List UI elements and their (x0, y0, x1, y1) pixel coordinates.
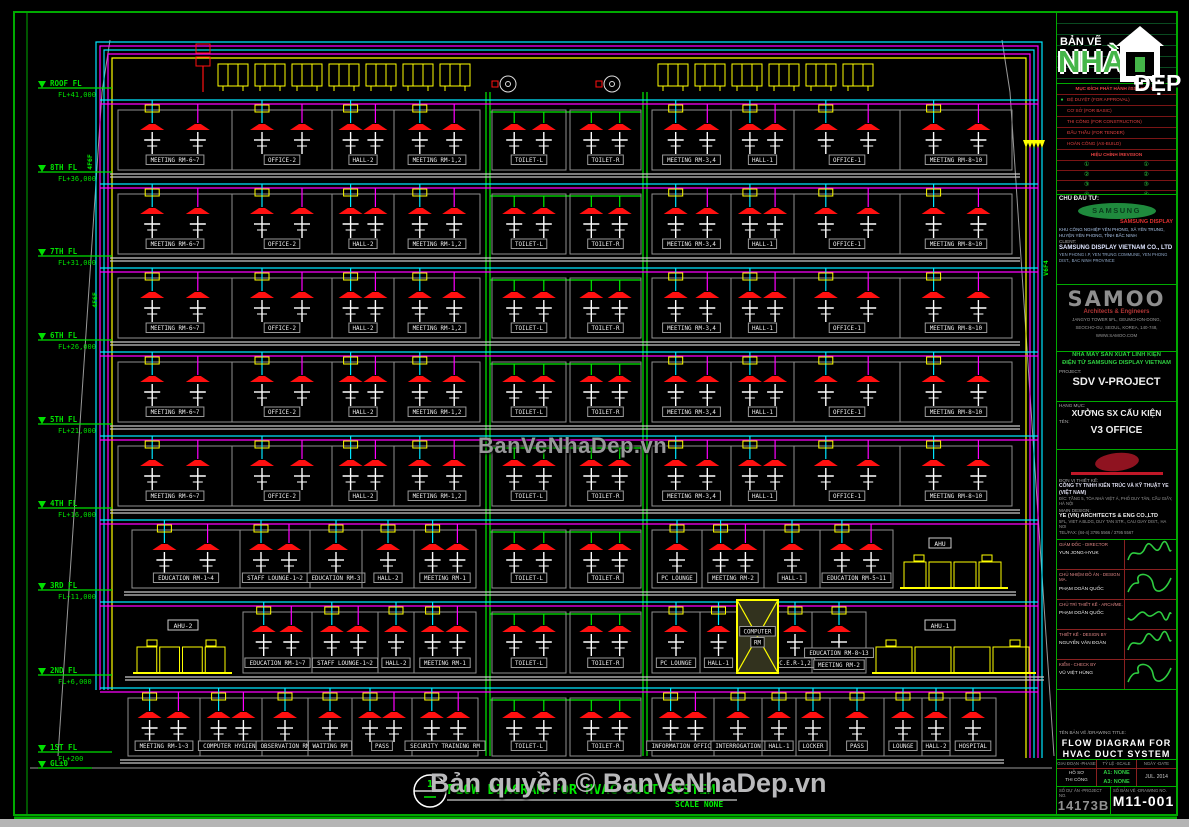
svg-text:HALL-1: HALL-1 (752, 494, 773, 500)
revision-row: ③③ (1057, 181, 1176, 191)
svg-text:OFFICE-1: OFFICE-1 (833, 410, 861, 416)
signature-role-cell: CHỦ NHIỆM ĐỒ ÁN - DESIGN MA.PHẠM DOÃN QU… (1057, 570, 1125, 599)
svg-text:LOCKER: LOCKER (803, 744, 824, 750)
revision-mark: ③ (1117, 181, 1177, 190)
revision-mark: ② (1117, 171, 1177, 180)
svg-text:TOILET-L: TOILET-L (515, 576, 543, 582)
svg-text:TOILET-R: TOILET-R (592, 158, 620, 164)
signature-mark (1125, 570, 1176, 599)
revision-rows: ①①②②③③④④ (1057, 161, 1176, 194)
svg-text:STAFF LOUNGE-1~2: STAFF LOUNGE-1~2 (247, 576, 303, 582)
drawing-title-block: TÊN BẢN VẼ /DRAWING TITLE: FLOW DIAGRAM … (1057, 689, 1176, 759)
project-block: NHÀ MÁY SẢN XUẤT LINH KIỆN ĐIỆN TỬ SAMSU… (1057, 351, 1176, 401)
signature-mark (1125, 660, 1176, 689)
svg-text:MEETING RM-8~10: MEETING RM-8~10 (930, 242, 983, 248)
project-label: PROJECT: (1057, 368, 1176, 374)
signature-row: GIÁM ĐỐC - DIRECTORYUN JONG-HYUK (1057, 540, 1176, 570)
svg-text:FL+16,000: FL+16,000 (58, 511, 96, 519)
svg-text:HALL-2: HALL-2 (378, 576, 399, 582)
designer-logo-bar (1071, 472, 1163, 475)
svg-text:HALL-2: HALL-2 (353, 242, 374, 248)
svg-text:INFORMATION OFFICE: INFORMATION OFFICE (652, 744, 715, 750)
svg-text:OFFICE-1: OFFICE-1 (833, 326, 861, 332)
revision-header: HIỆU CHỈNH /REVISION (1057, 150, 1176, 161)
drawing-title-line2: HVAC DUCT SYSTEM (1057, 749, 1176, 759)
svg-text:OFFICE-2: OFFICE-2 (268, 494, 296, 500)
item-block: HẠNG MỤC: XƯỞNG SX CẤU KIỆN TÊN: V3 OFFI… (1057, 401, 1176, 449)
svg-text:TOILET-L: TOILET-L (515, 494, 543, 500)
svg-text:FL+26,000: FL+26,000 (58, 343, 96, 351)
part-label: TÊN: (1057, 418, 1176, 424)
duct-riser-bundle: 4F6F4F6FV6F4 (86, 42, 1050, 758)
client-desc-vn: KHU CÔNG NGHIỆP YÊN PHONG, XÃ YÊN TRUNG,… (1057, 225, 1176, 238)
issued-active-dot (1057, 139, 1067, 149)
svg-text:SCALE NONE: SCALE NONE (675, 800, 723, 809)
svg-text:MEETING RM-8~10: MEETING RM-8~10 (930, 326, 983, 332)
signature-role-cell: CHỦ TRÌ THIẾT KẾ - ARCH/ME.PHẠM DOÃN QUỐ… (1057, 600, 1125, 629)
svg-text:5TH FL: 5TH FL (50, 415, 78, 424)
scale-col: TỶ LỆ -SCALE A1: NONE A3: NONE (1096, 760, 1136, 786)
samoo-address-1: JANGYO TOWER 5FL, GEUMCHON-DONG, (1057, 317, 1176, 323)
svg-text:MEETING RM-6~7: MEETING RM-6~7 (151, 326, 200, 332)
signature-row: CHỦ NHIỆM ĐỒ ÁN - DESIGN MA.PHẠM DOÃN QU… (1057, 570, 1176, 600)
svg-text:HOSPITAL: HOSPITAL (959, 744, 987, 750)
scale-label: TỶ LỆ -SCALE (1097, 760, 1136, 769)
issued-active-dot (1057, 117, 1067, 127)
svg-text:FL+11,000: FL+11,000 (58, 593, 96, 601)
floor-levels: ROOF FLFL+41,0008TH FLFL+36,0007TH FLFL+… (38, 79, 112, 768)
svg-text:OFFICE-1: OFFICE-1 (833, 158, 861, 164)
svg-text:TOILET-L: TOILET-L (515, 242, 543, 248)
client-label: CHỦ ĐẦU TƯ: (1057, 195, 1176, 202)
svg-text:TOILET-L: TOILET-L (515, 410, 543, 416)
svg-text:C.E.R-1,2: C.E.R-1,2 (779, 661, 810, 667)
designer-address-vn: Đ/C: TẦNG 5, TÒA NHÀ VIỆT Á, PHỐ DUY TÂN… (1057, 496, 1176, 507)
svg-text:COMPUTER: COMPUTER (744, 630, 772, 636)
svg-text:TOILET-R: TOILET-R (592, 576, 620, 582)
project-name-vn-2: ĐIỆN TỬ SAMSUNG DISPLAY VIETNAM (1057, 360, 1176, 368)
svg-text:HALL-1: HALL-1 (708, 661, 729, 667)
watermark-bottom: Bản quyền © BanVeNhaDep.vn (430, 768, 826, 799)
svg-text:HALL-1: HALL-1 (752, 410, 773, 416)
svg-text:HALL-2: HALL-2 (353, 158, 374, 164)
issued-row: HOÀN CÔNG (AS-BUILD) (1057, 139, 1176, 150)
revision-mark: ① (1057, 161, 1117, 170)
client-address: YEN PHONG I.P, YEN TRUNG COMMUNE, YEN PH… (1057, 251, 1176, 263)
svg-text:MEETING RM-6~7: MEETING RM-6~7 (151, 410, 200, 416)
date-value: JUL. 2014 (1137, 769, 1176, 786)
issued-row-label: HOÀN CÔNG (AS-BUILD) (1067, 139, 1121, 149)
svg-text:OFFICE-1: OFFICE-1 (833, 242, 861, 248)
svg-text:MEETING RM-1,2: MEETING RM-1,2 (413, 242, 462, 248)
project-name-vn-1: NHÀ MÁY SẢN XUẤT LINH KIỆN (1057, 352, 1176, 360)
svg-text:FL+21,000: FL+21,000 (58, 427, 96, 435)
item-name: XƯỞNG SX CẤU KIỆN (1057, 408, 1176, 418)
svg-text:2ND FL: 2ND FL (50, 666, 78, 675)
project-name: SDV V-PROJECT (1057, 376, 1176, 388)
svg-text:MEETING RM-8~10: MEETING RM-8~10 (930, 158, 983, 164)
svg-text:MEETING RM-1,2: MEETING RM-1,2 (413, 494, 462, 500)
svg-text:ROOF FL: ROOF FL (50, 79, 82, 88)
svg-text:TOILET-R: TOILET-R (592, 326, 620, 332)
project-no-cell: SỐ DỰ ÁN -PROJECT NO. 14173B (1057, 787, 1111, 816)
svg-text:MEETING RM-1,2: MEETING RM-1,2 (413, 158, 462, 164)
logo-text-dep: ĐẸP (1134, 72, 1181, 95)
hvac-flow-diagram: 4F6F4F6FV6F4ROOF FLFL+41,0008TH FLFL+36,… (0, 0, 1189, 827)
svg-text:MEETING RM-3,4: MEETING RM-3,4 (667, 410, 716, 416)
svg-text:PASS: PASS (375, 744, 389, 750)
svg-text:AHU: AHU (934, 541, 945, 548)
title-block: MỤC ĐÍCH PHÁT HÀNH /ISSUED FOR ●ĐỆ DUYỆT… (1056, 12, 1177, 815)
svg-text:HALL-2: HALL-2 (926, 744, 947, 750)
svg-text:OFFICE-2: OFFICE-2 (268, 158, 296, 164)
signature-role: CHỦ TRÌ THIẾT KẾ - ARCH/ME. (1059, 602, 1124, 607)
svg-text:STAFF LOUNGE-1~2: STAFF LOUNGE-1~2 (317, 661, 373, 667)
signature-row: KIỂM - CHECK BYVŨ VIỆT HÙNG (1057, 660, 1176, 689)
signature-mark (1125, 600, 1176, 629)
svg-text:WAITING RM: WAITING RM (313, 744, 348, 750)
svg-text:TOILET-R: TOILET-R (592, 744, 620, 750)
signature-role-cell: KIỂM - CHECK BYVŨ VIỆT HÙNG (1057, 660, 1125, 689)
issued-row: ĐẤU THẦU (FOR TENDER) (1057, 128, 1176, 139)
svg-text:COMPUTER HYGIENE: COMPUTER HYGIENE (203, 744, 259, 750)
signature-row: CHỦ TRÌ THIẾT KẾ - ARCH/ME.PHẠM DOÃN QUỐ… (1057, 600, 1176, 630)
signature-name: VŨ VIỆT HÙNG (1059, 671, 1124, 676)
svg-text:7TH FL: 7TH FL (50, 247, 78, 256)
svg-text:FL+31,000: FL+31,000 (58, 259, 96, 267)
signature-role: KIỂM - CHECK BY (1059, 662, 1124, 667)
svg-text:4F6F: 4F6F (86, 154, 94, 170)
client-name: SAMSUNG DISPLAY VIETNAM CO., LTD (1057, 244, 1176, 251)
signature-role: CHỦ NHIỆM ĐỒ ÁN - DESIGN MA. (1059, 572, 1124, 583)
watermark-center: BanVeNhaDep.vn (478, 433, 667, 459)
svg-text:PC LOUNGE: PC LOUNGE (660, 661, 692, 667)
svg-text:MEETING RM-1~3: MEETING RM-1~3 (140, 744, 189, 750)
revision-mark: ② (1057, 171, 1117, 180)
phase-value-2: THI CÔNG (1057, 777, 1096, 783)
svg-text:OFFICE-1: OFFICE-1 (833, 494, 861, 500)
floor-8F: MEETING RM-6~7OFFICE-2HALL-2MEETING RM-1… (100, 100, 1038, 177)
client-block: CHỦ ĐẦU TƯ: SAMSUNG SAMSUNG DISPLAY KHU … (1057, 194, 1176, 284)
project-no: 14173B (1057, 798, 1110, 813)
svg-text:MEETING RM-1: MEETING RM-1 (424, 576, 466, 582)
svg-text:EDUCATION RM-3: EDUCATION RM-3 (312, 576, 361, 582)
revision-row: ①① (1057, 161, 1176, 171)
svg-text:OFFICE-2: OFFICE-2 (268, 410, 296, 416)
designer-address-en: 5FL, VIET A BLDG, DUY TAN STR., CAU GIAY… (1057, 519, 1176, 530)
drawing-no: M11-001 (1111, 793, 1176, 809)
scale-value-a1: A1: NONE (1097, 770, 1136, 778)
svg-text:EDUCATION RM-8~13: EDUCATION RM-8~13 (809, 651, 869, 657)
designer-company-vn: CÔNG TY TNHH KIẾN TRÚC VÀ KỸ THUẬT YE (V… (1057, 483, 1176, 496)
floor-6F: MEETING RM-6~7OFFICE-2HALL-2MEETING RM-1… (100, 268, 1038, 345)
svg-text:1ST FL: 1ST FL (50, 743, 78, 752)
svg-text:TOILET-R: TOILET-R (592, 494, 620, 500)
svg-text:LOUNGE: LOUNGE (893, 744, 914, 750)
floor-5F: MEETING RM-6~7OFFICE-2HALL-2MEETING RM-1… (100, 352, 1038, 429)
svg-text:TOILET-L: TOILET-L (515, 661, 543, 667)
svg-text:EDUCATION RM-1~7: EDUCATION RM-1~7 (250, 661, 306, 667)
svg-text:PASS: PASS (850, 744, 864, 750)
cad-sheet: 4F6F4F6FV6F4ROOF FLFL+41,0008TH FLFL+36,… (0, 0, 1189, 827)
svg-text:TOILET-L: TOILET-L (515, 326, 543, 332)
svg-text:MEETING RM-1,2: MEETING RM-1,2 (413, 410, 462, 416)
samoo-website: WWW.SAMOO.COM (1057, 333, 1176, 339)
svg-text:TOILET-R: TOILET-R (592, 410, 620, 416)
svg-text:3RD FL: 3RD FL (50, 581, 78, 590)
svg-text:V6F4: V6F4 (1042, 260, 1050, 276)
svg-text:HALL-1: HALL-1 (752, 158, 773, 164)
signature-role-cell: GIÁM ĐỐC - DIRECTORYUN JONG-HYUK (1057, 540, 1125, 569)
signature-name: YUN JONG-HYUK (1059, 551, 1124, 556)
svg-text:TOILET-R: TOILET-R (592, 661, 620, 667)
signature-role: THIẾT KẾ - DESIGN BY (1059, 632, 1124, 637)
svg-text:HALL-1: HALL-1 (752, 242, 773, 248)
svg-text:HALL-1: HALL-1 (769, 744, 790, 750)
signature-role: GIÁM ĐỐC - DIRECTOR (1059, 542, 1124, 547)
svg-text:AHU-2: AHU-2 (174, 623, 193, 630)
date-label: NGÀY -DATE (1137, 760, 1176, 769)
issued-row-label: CƠ SỞ (FOR BASIC) (1067, 106, 1112, 116)
svg-text:HALL-2: HALL-2 (353, 410, 374, 416)
issued-row-label: ĐẤU THẦU (FOR TENDER) (1067, 128, 1125, 138)
number-row: SỐ DỰ ÁN -PROJECT NO. 14173B SỐ BẢN VẼ -… (1057, 786, 1176, 816)
svg-text:INTERROGATION: INTERROGATION (715, 744, 761, 750)
signature-name: NGUYỄN VĂN ĐOÀN (1059, 641, 1124, 646)
svg-text:OFFICE-2: OFFICE-2 (268, 242, 296, 248)
svg-text:HALL-1: HALL-1 (782, 576, 803, 582)
samsung-logo: SAMSUNG (1078, 203, 1156, 219)
signature-table: GIÁM ĐỐC - DIRECTORYUN JONG-HYUKCHỦ NHIỆ… (1057, 539, 1176, 689)
svg-text:MEETING RM-1: MEETING RM-1 (424, 661, 466, 667)
revision-mark: ③ (1057, 181, 1117, 190)
svg-text:TOILET-L: TOILET-L (515, 158, 543, 164)
svg-text:GL±0: GL±0 (50, 759, 69, 768)
issued-row: THI CÔNG (FOR CONSTRUCTION) (1057, 117, 1176, 128)
signature-row: THIẾT KẾ - DESIGN BYNGUYỄN VĂN ĐOÀN (1057, 630, 1176, 660)
svg-text:HALL-2: HALL-2 (386, 661, 407, 667)
svg-text:EDUCATION RM-5~11: EDUCATION RM-5~11 (827, 576, 887, 582)
designer-logo (1094, 451, 1140, 474)
svg-text:MEETING RM-8~10: MEETING RM-8~10 (930, 494, 983, 500)
svg-text:4F6F: 4F6F (91, 292, 99, 308)
drawing-title-label: TÊN BẢN VẼ /DRAWING TITLE: (1059, 730, 1126, 735)
scale-value-a3: A3: NONE (1097, 779, 1136, 786)
svg-text:MEETING RM-8~10: MEETING RM-8~10 (930, 410, 983, 416)
svg-text:OBSERVATION RM: OBSERVATION RM (261, 744, 310, 750)
issued-row: CƠ SỞ (FOR BASIC) (1057, 106, 1176, 117)
signature-mark (1125, 630, 1176, 659)
architect-block: SAMOO Architects & Engineers JANGYO TOWE… (1057, 284, 1176, 351)
banvenhadep-logo: BẢN VẼ NHÀ ĐẸP (1058, 12, 1184, 104)
samoo-address-2: SEOCHO-GU, SEOUL, KOREA, 140-748, (1057, 325, 1176, 331)
phase-scale-date-row: GIAI ĐOẠN -PHASE HỒ SƠ THI CÔNG TỶ LỆ -S… (1057, 759, 1176, 786)
svg-text:TOILET-R: TOILET-R (592, 242, 620, 248)
phase-col: GIAI ĐOẠN -PHASE HỒ SƠ THI CÔNG (1057, 760, 1096, 786)
svg-text:HALL-2: HALL-2 (353, 494, 374, 500)
svg-text:MEETING RM-3,4: MEETING RM-3,4 (667, 326, 716, 332)
svg-text:MEETING RM-3,4: MEETING RM-3,4 (667, 158, 716, 164)
phase-label: GIAI ĐOẠN -PHASE (1057, 760, 1096, 769)
issued-active-dot (1057, 128, 1067, 138)
phase-value-1: HỒ SƠ (1057, 770, 1096, 776)
floor-3F: EDUCATION RM-1~4STAFF LOUNGE-1~2EDUCATIO… (100, 520, 1038, 595)
svg-text:6TH FL: 6TH FL (50, 331, 78, 340)
issued-active-dot (1057, 106, 1067, 116)
svg-text:8TH FL: 8TH FL (50, 163, 78, 172)
svg-text:TOILET-L: TOILET-L (515, 744, 543, 750)
svg-text:MEETING RM-2: MEETING RM-2 (712, 576, 754, 582)
date-col: NGÀY -DATE JUL. 2014 (1136, 760, 1176, 786)
svg-text:HALL-2: HALL-2 (353, 326, 374, 332)
issued-row-label: THI CÔNG (FOR CONSTRUCTION) (1067, 117, 1142, 127)
svg-text:MEETING RM-6~7: MEETING RM-6~7 (151, 494, 200, 500)
svg-text:RM: RM (754, 641, 761, 647)
part-name: V3 OFFICE (1057, 425, 1176, 436)
floor-1F: MEETING RM-1~3COMPUTER HYGIENEOBSERVATIO… (100, 688, 1038, 763)
svg-text:OFFICE-2: OFFICE-2 (268, 326, 296, 332)
rooftop-equipment (218, 64, 873, 92)
svg-text:FL+41,000: FL+41,000 (58, 91, 96, 99)
drawing-title-line1: FLOW DIAGRAM FOR (1057, 738, 1176, 748)
svg-text:HALL-1: HALL-1 (752, 326, 773, 332)
svg-text:MEETING RM-1,2: MEETING RM-1,2 (413, 326, 462, 332)
project-no-label: SỐ DỰ ÁN -PROJECT NO. (1057, 787, 1110, 798)
svg-text:4TH FL: 4TH FL (50, 499, 78, 508)
svg-text:MEETING RM-6~7: MEETING RM-6~7 (151, 158, 200, 164)
floor-2F: EDUCATION RM-1~7STAFF LOUNGE-1~2HALL-2ME… (100, 600, 1044, 680)
svg-text:FL+36,000: FL+36,000 (58, 175, 96, 183)
svg-text:PC LOUNGE: PC LOUNGE (661, 576, 693, 582)
svg-text:AHU-1: AHU-1 (931, 623, 950, 630)
svg-text:SECURITY TRAINING RM: SECURITY TRAINING RM (410, 744, 480, 750)
revision-mark: ① (1117, 161, 1177, 170)
designer-tel: TEL/FAX: (84-4) 3795 5566 / 3795 5567 (1057, 530, 1176, 535)
svg-text:MEETING RM-6~7: MEETING RM-6~7 (151, 242, 200, 248)
signature-role-cell: THIẾT KẾ - DESIGN BYNGUYỄN VĂN ĐOÀN (1057, 630, 1125, 659)
svg-text:EDUCATION RM-1~4: EDUCATION RM-1~4 (158, 576, 214, 582)
bottom-strip (0, 819, 1189, 827)
floor-7F: MEETING RM-6~7OFFICE-2HALL-2MEETING RM-1… (100, 184, 1038, 261)
signature-name: PHẠM DOÃN QUỐC (1059, 587, 1124, 592)
revision-row: ②② (1057, 171, 1176, 181)
svg-text:MEETING RM-3,4: MEETING RM-3,4 (667, 242, 716, 248)
signature-mark (1125, 540, 1176, 569)
samoo-logo: SAMOO (1057, 289, 1176, 310)
svg-text:MEETING RM-3,4: MEETING RM-3,4 (667, 494, 716, 500)
svg-text:FL+6,000: FL+6,000 (58, 678, 92, 686)
drawing-no-cell: SỐ BẢN VẼ -DRAWING NO. M11-001 (1111, 787, 1176, 816)
svg-text:MEETING RM-2: MEETING RM-2 (818, 663, 860, 669)
signature-name: PHẠM DOÃN QUỐC (1059, 611, 1124, 616)
designer-block: ĐƠN VỊ THIẾT KẾ: CÔNG TY TNHH KIẾN TRÚC … (1057, 449, 1176, 539)
